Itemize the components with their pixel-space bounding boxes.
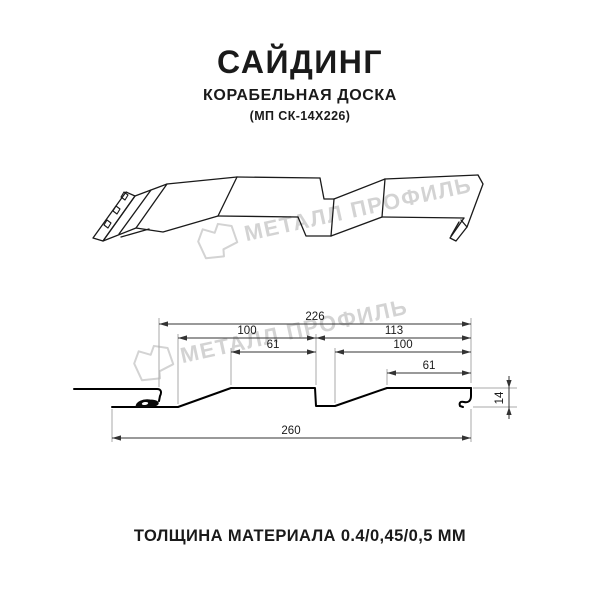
dimension-lines (112, 324, 509, 438)
end-cap (461, 175, 483, 227)
profile-cross-section (74, 388, 471, 407)
slope2-plank2-crease (382, 179, 385, 217)
dim-right-inner-pitch: 100 (393, 339, 412, 351)
end-hem-crease (451, 222, 459, 236)
siding-3d-view (93, 175, 483, 241)
thickness-note: ТОЛЩИНА МАТЕРИАЛА 0.4/0,45/0,5 ММ (0, 527, 600, 546)
product-drawing-page: САЙДИНГ КОРАБЕЛЬНАЯ ДОСКА (МП СК-14Х226)… (0, 0, 600, 600)
plank1-bottom-edge (218, 216, 298, 217)
slope2-back-edge (334, 179, 385, 199)
panel-top-edge (167, 177, 237, 184)
step-front-edge (298, 217, 331, 236)
technical-drawing: 226 100 113 61 100 61 260 14 (0, 0, 600, 600)
dim-module-width: 226 (305, 311, 324, 323)
dim-right-plank-face: 61 (423, 360, 436, 372)
lock-fold-foot (121, 229, 149, 237)
dim-total-width: 260 (281, 425, 300, 437)
plank2-bottom-edge (382, 217, 464, 218)
profile-body (112, 388, 471, 407)
nail-hole (113, 206, 120, 214)
dimension-arrows (112, 321, 512, 440)
slope2-front-edge (331, 217, 382, 236)
end-hem-flap (450, 218, 467, 241)
dim-left-pitch: 100 (237, 325, 256, 337)
panel-bottom-edge (136, 216, 218, 232)
plank2-top-edge (385, 175, 478, 179)
dim-right-pitch: 113 (385, 325, 403, 337)
nail-strip (93, 192, 135, 241)
step-back-edge (320, 178, 334, 199)
dim-left-plank-face: 61 (267, 339, 280, 351)
slope1-plank1-crease (218, 177, 237, 216)
profile-end-hook (460, 388, 471, 407)
plank1-top-edge (237, 177, 320, 178)
groove-crease (331, 199, 334, 236)
dim-profile-height: 14 (494, 391, 506, 404)
profile-lock-seam (136, 400, 158, 407)
profile-flange (74, 389, 161, 401)
extension-lines (112, 318, 517, 442)
